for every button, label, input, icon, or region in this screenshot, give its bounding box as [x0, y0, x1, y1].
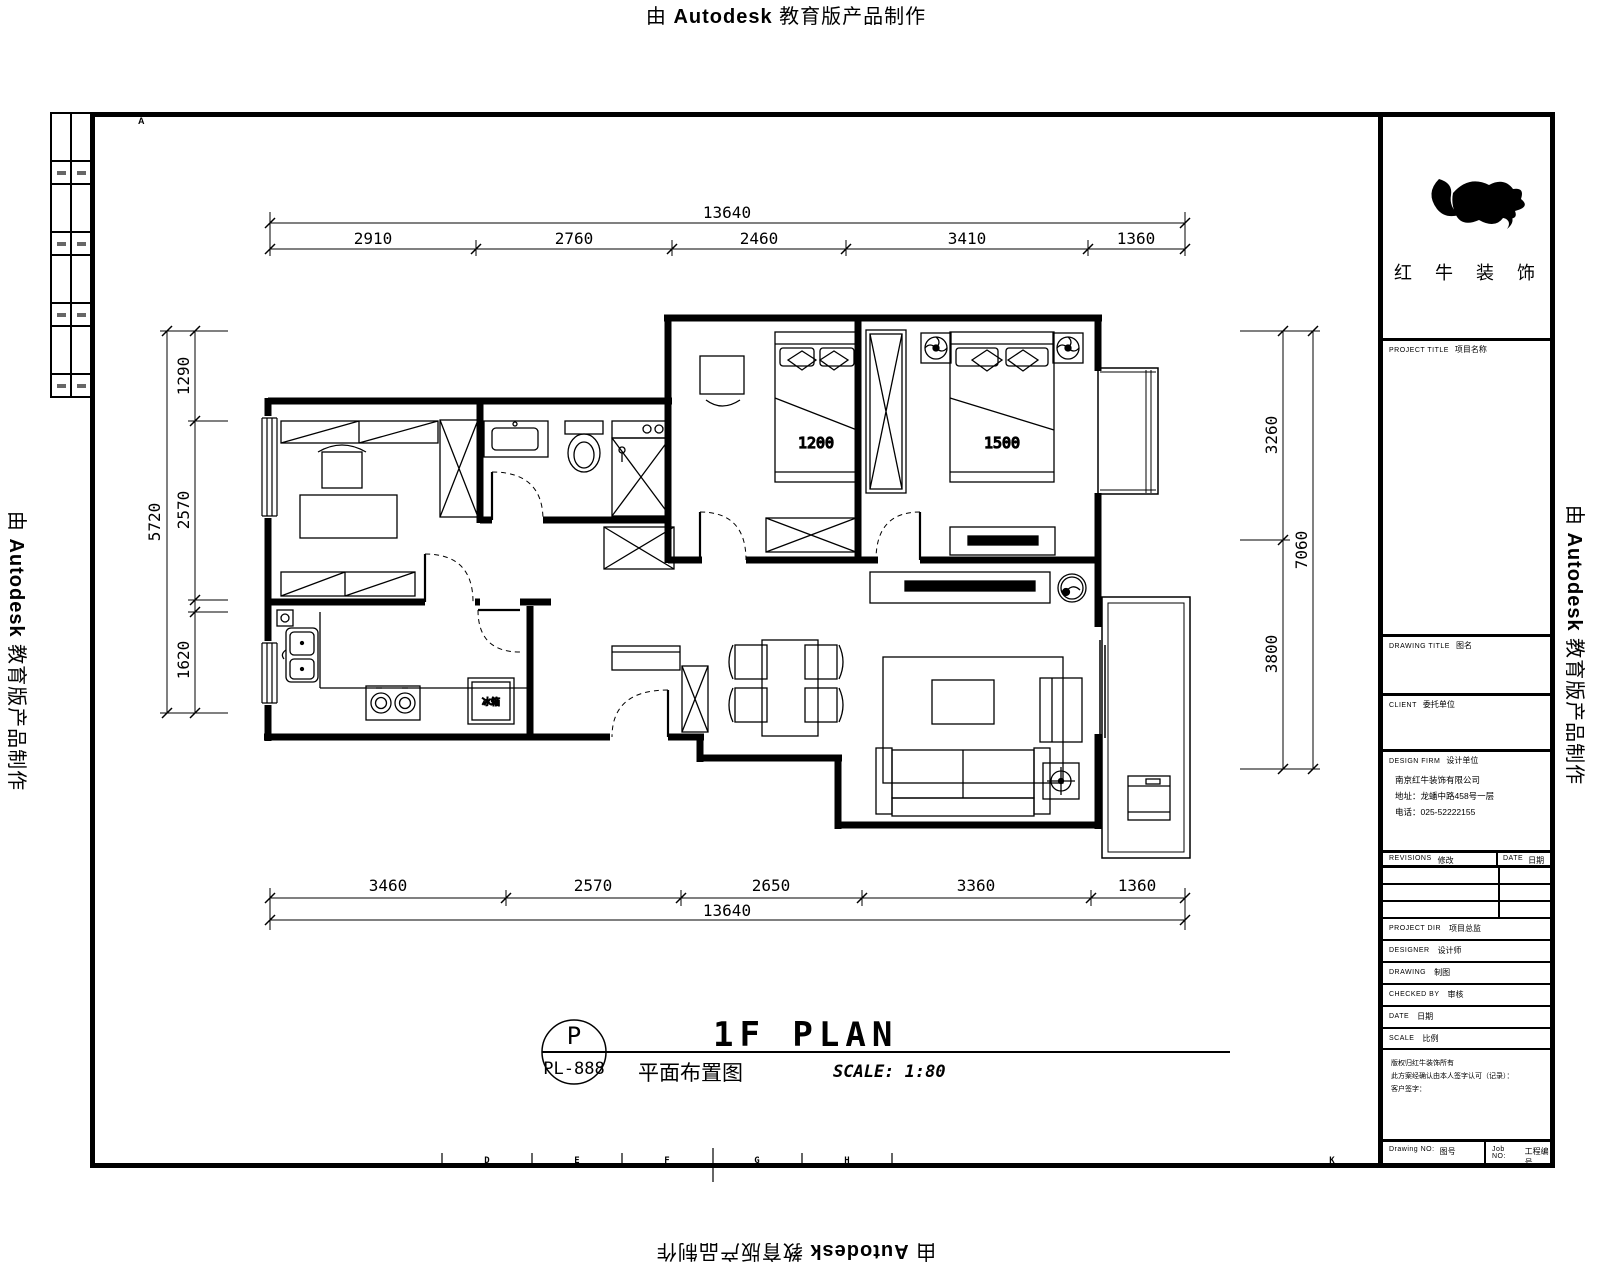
rug: [883, 657, 1063, 783]
scale-label: SCALE: 1:80: [833, 1062, 946, 1082]
dimension-top: 13640 2910 2760 2460 3410 1360: [265, 203, 1190, 256]
dimension-bottom: 3460 2570 2650 3360 1360 13640: [265, 876, 1190, 930]
gas-stove: [366, 686, 420, 720]
shelf: [612, 421, 670, 438]
dim-text: 1360: [1117, 229, 1156, 248]
dining-chair: [805, 645, 837, 679]
grid-letter: E: [574, 1156, 579, 1166]
dim-text: 2460: [740, 229, 779, 248]
sideboard: [612, 646, 680, 670]
cabinet: [281, 572, 415, 596]
dim-text: 13640: [703, 901, 751, 920]
dim-text: 1620: [174, 641, 193, 680]
bubble-letter: P: [567, 1022, 581, 1050]
dim-text: 3460: [369, 876, 408, 895]
tv-icon: [968, 536, 1038, 545]
study-room: [281, 420, 478, 596]
balcony: [1100, 597, 1190, 858]
toilet: [568, 434, 600, 472]
living-room: [870, 572, 1170, 820]
plant-icon: [1058, 574, 1086, 602]
dim-text: 1360: [1118, 876, 1157, 895]
dim-text: 1290: [174, 357, 193, 396]
grid-letter: K: [1329, 1156, 1335, 1166]
grid-letter: H: [844, 1156, 849, 1166]
dim-text: 3360: [957, 876, 996, 895]
grid-letter: F: [664, 1156, 669, 1166]
dim-text: 5720: [145, 503, 164, 542]
desk: [300, 495, 397, 538]
fridge-label: 冰箱: [482, 696, 500, 708]
fridge: 冰箱: [468, 678, 514, 724]
washbasin: [492, 428, 538, 450]
grid-refs-bottom: D E F G H K: [442, 1148, 1335, 1182]
pillow: [780, 348, 814, 366]
armchair: [1040, 678, 1082, 742]
tv-icon: [905, 581, 1035, 591]
dim-text: 2650: [752, 876, 791, 895]
dim-text: 3800: [1262, 635, 1281, 674]
bed-size-label: 1500: [984, 434, 1020, 452]
dimension-left: 5720 1290 2570 1620: [145, 326, 228, 718]
master-bedroom: 1500: [921, 332, 1083, 555]
bathroom: [484, 421, 674, 569]
dim-text: 13640: [703, 203, 751, 222]
bubble-code: PL-888: [543, 1059, 604, 1079]
grid-letter: D: [484, 1156, 490, 1166]
bed-size-label: 1200: [798, 434, 834, 452]
dim-text: 2570: [174, 491, 193, 530]
plan-title-cn: 平面布置图: [638, 1061, 743, 1085]
dimension-right: 3260 3800 7060: [1240, 326, 1320, 774]
kitchen-sink: [282, 628, 318, 682]
bedroom-second: 1200: [700, 332, 857, 552]
washing-machine: [1128, 776, 1170, 820]
dining-area: [612, 640, 843, 736]
plan-title-en: 1F PLAN: [713, 1015, 898, 1055]
desk: [700, 356, 744, 394]
dim-text: 3260: [1262, 416, 1281, 455]
grid-letter: G: [754, 1156, 759, 1166]
kitchen: 冰箱: [277, 610, 530, 724]
dim-text: 7060: [1292, 531, 1311, 570]
chair: [322, 452, 362, 488]
plan-title: P PL-888 平面布置图 1F PLAN SCALE: 1:80: [542, 1015, 1230, 1085]
floor-plan-canvas: 1200 1500: [0, 0, 1600, 1280]
bay-window: [1098, 368, 1158, 494]
sofa: [876, 748, 1050, 816]
ceiling-fan-icon: [1053, 333, 1083, 363]
bed-1200: [775, 332, 857, 482]
toilet-tank: [565, 421, 603, 434]
dim-text: 2910: [354, 229, 393, 248]
meter-box: [277, 610, 293, 626]
bed-1500: [950, 332, 1054, 482]
wardrobe-column: [866, 330, 906, 493]
dim-text: 2760: [555, 229, 594, 248]
dim-text: 3410: [948, 229, 987, 248]
ceiling-fan-icon: [921, 333, 951, 363]
dim-text: 2570: [574, 876, 613, 895]
coffee-table: [932, 680, 994, 724]
dining-chair: [805, 688, 837, 722]
side-table-lamp: [1043, 763, 1079, 799]
